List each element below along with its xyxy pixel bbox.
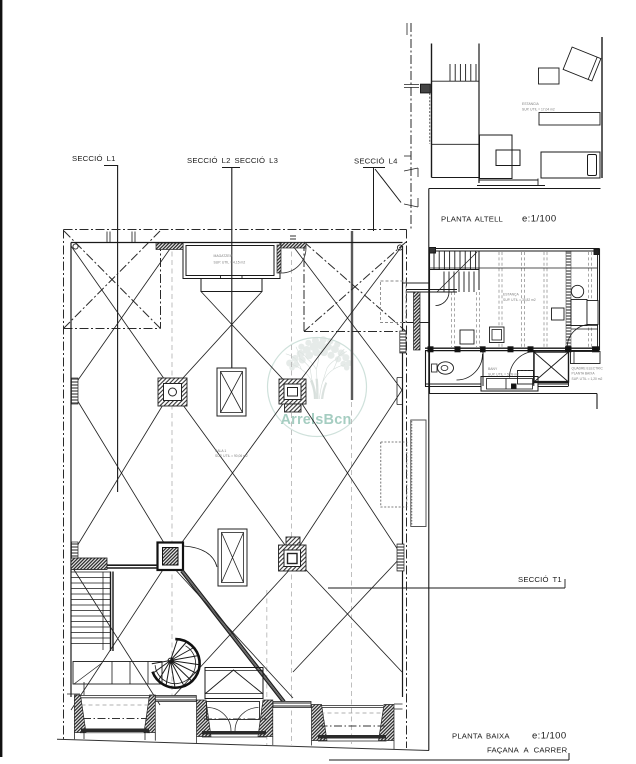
svg-text:e:1/100: e:1/100 (522, 214, 557, 225)
svg-text:SECCIÓ L2: SECCIÓ L2 (187, 156, 231, 165)
svg-text:SUP. UTIL = 90,06 m2: SUP. UTIL = 90,06 m2 (215, 454, 248, 458)
svg-text:FAÇANA A CARRER: FAÇANA A CARRER (487, 746, 568, 755)
svg-text:PLANTA ALTELL: PLANTA ALTELL (441, 215, 504, 224)
svg-text:SUP. UTIL = 5,09 m2: SUP. UTIL = 5,09 m2 (488, 373, 519, 377)
svg-text:SUP. UTIL = 4,15 m2: SUP. UTIL = 4,15 m2 (214, 261, 246, 265)
svg-text:SECCIÓ L3: SECCIÓ L3 (235, 156, 279, 165)
svg-text:PLANTA BAIXA: PLANTA BAIXA (452, 732, 510, 741)
svg-text:PLANTA BAIXA: PLANTA BAIXA (572, 372, 596, 376)
svg-text:SECCIÓ L4: SECCIÓ L4 (354, 157, 398, 166)
svg-text:SECCIÓ L1: SECCIÓ L1 (72, 154, 116, 163)
svg-text:ESTANCIA: ESTANCIA (522, 102, 539, 106)
svg-text:e:1/100: e:1/100 (532, 731, 567, 742)
svg-text:SUP. UTIL = 35,82 m2: SUP. UTIL = 35,82 m2 (503, 298, 536, 302)
svg-text:ESTANÇA: ESTANÇA (503, 293, 520, 297)
svg-text:SUP. UTIL = 1,20 m2: SUP. UTIL = 1,20 m2 (572, 377, 603, 381)
svg-text:SALA 1: SALA 1 (215, 449, 226, 453)
svg-text:SUP. UTIL = 17,04 m2: SUP. UTIL = 17,04 m2 (522, 108, 555, 112)
svg-text:MAGATZEM: MAGATZEM (214, 254, 233, 258)
svg-text:SECCIÓ T1: SECCIÓ T1 (518, 575, 562, 584)
svg-text:BANY: BANY (488, 367, 498, 371)
svg-text:QUADRE ELECTRIC: QUADRE ELECTRIC (572, 367, 604, 371)
